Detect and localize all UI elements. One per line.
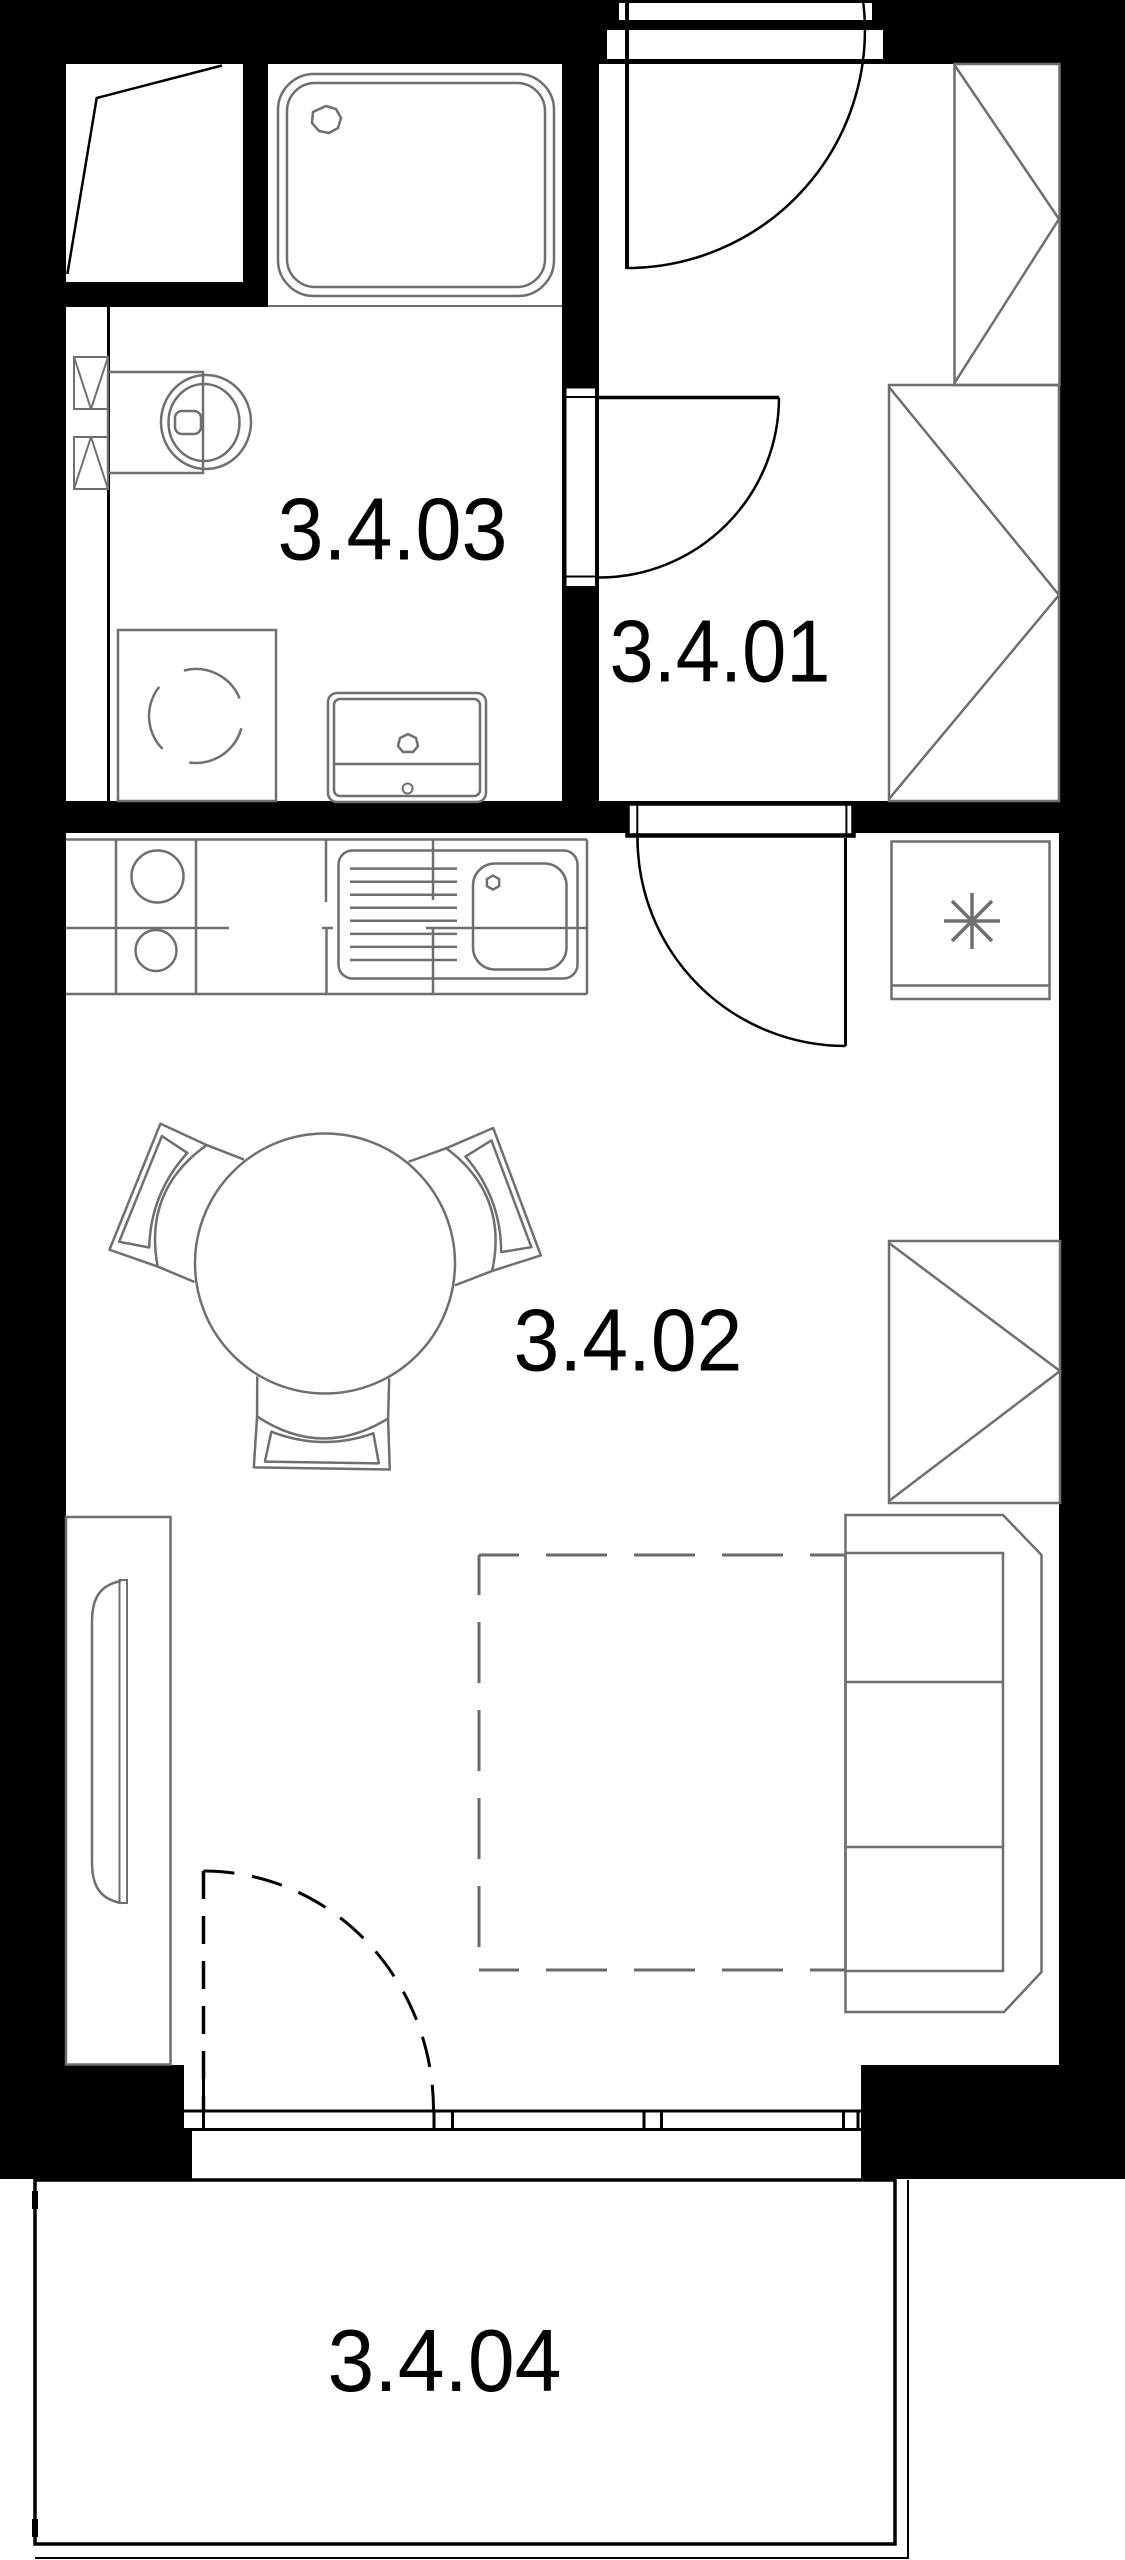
svg-text:3.4.02: 3.4.02 — [514, 1291, 743, 1390]
svg-text:3.4.01: 3.4.01 — [610, 602, 831, 701]
svg-text:3.4.04: 3.4.04 — [328, 2311, 562, 2410]
svg-text:3.4.03: 3.4.03 — [278, 480, 508, 579]
